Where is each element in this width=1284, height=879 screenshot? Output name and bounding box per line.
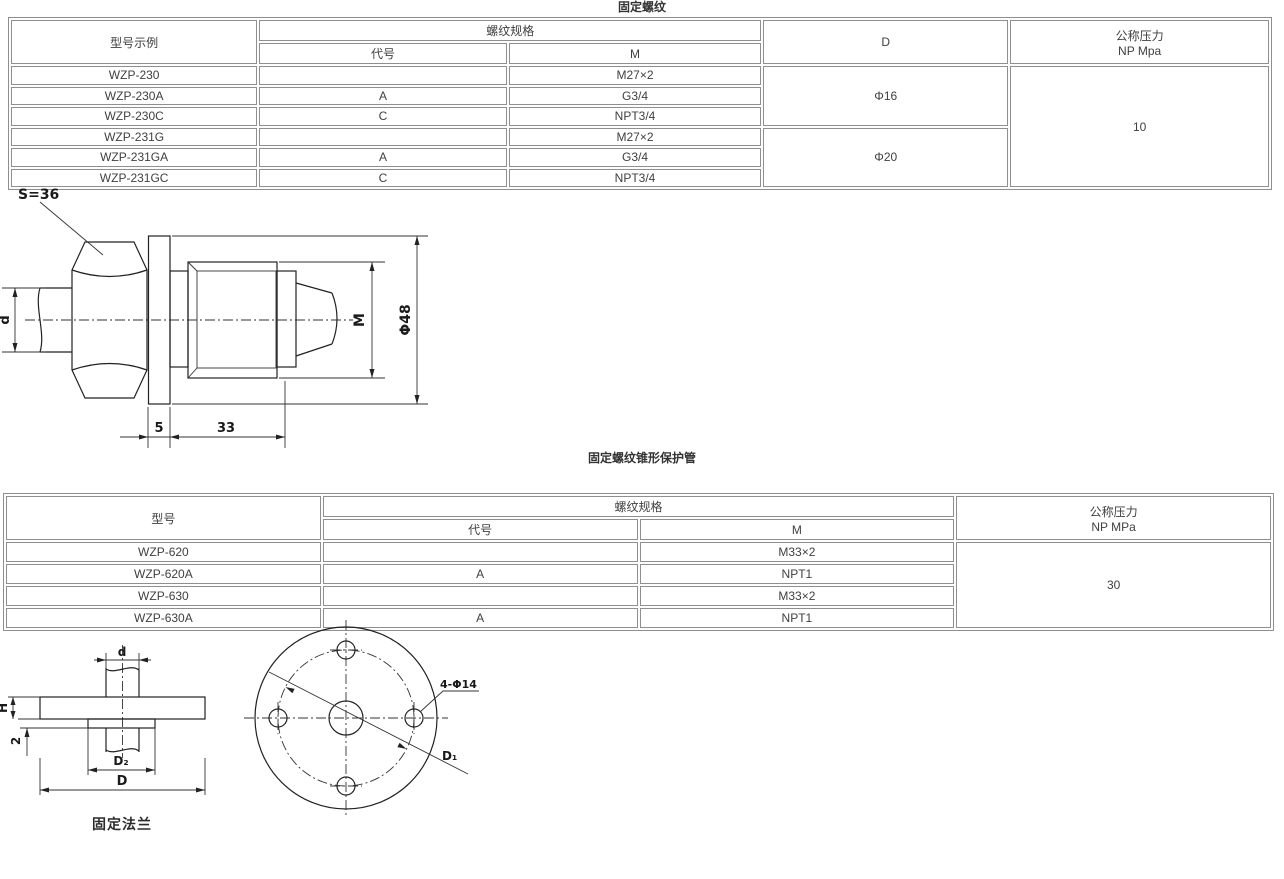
t2-header-model: 型号 (6, 496, 321, 540)
code-cell: C (259, 107, 507, 126)
metric-cell: M27×2 (509, 128, 762, 147)
t1-header-pressure: 公称压力 NP Mpa (1010, 20, 1269, 64)
bolt-holes-label: 4-Φ14 (440, 678, 477, 691)
section1-title: 固定螺纹 (0, 0, 1284, 15)
model-cell: WZP-630 (6, 586, 321, 606)
t2-header-pressure-line2: NP MPa (959, 520, 1268, 534)
code-cell (323, 586, 638, 606)
pressure-cell: 10 (1010, 66, 1269, 187)
code-cell (323, 542, 638, 562)
t2-header-thread-spec: 螺纹规格 (323, 496, 955, 517)
catalog-page: 固定螺纹 型号示例 螺纹规格 D 公称压力 NP Mpa 代号 M (0, 0, 1284, 879)
flange-height-dimension: H (0, 697, 40, 719)
metric-cell: M33×2 (640, 586, 955, 606)
t1-header-metric: M (509, 43, 762, 64)
thread-length-label: 33 (217, 421, 235, 436)
metric-cell: M33×2 (640, 542, 955, 562)
metric-cell: G3/4 (509, 87, 762, 106)
section2-title: 固定螺纹锥形保护管 (0, 449, 1284, 466)
thread-label: M (352, 313, 368, 327)
pressure-cell: 30 (956, 542, 1271, 628)
boss-dia-dimension: D₂ (88, 728, 155, 775)
code-cell: A (323, 564, 638, 584)
table-row: WZP-620 M33×2 30 (6, 542, 1271, 562)
metric-cell: NPT3/4 (509, 169, 762, 188)
tube-dia-label: d (118, 645, 127, 659)
metric-cell: NPT1 (640, 608, 955, 628)
neck-step (170, 271, 188, 367)
metric-cell: G3/4 (509, 148, 762, 167)
threaded-fitting-drawing: S=36 d M Φ48 (0, 185, 450, 455)
boss-height-label: 2 (9, 737, 23, 745)
t1-header-thread-spec: 螺纹规格 (259, 20, 761, 41)
model-cell: WZP-230A (11, 87, 257, 106)
diameter-cell: Φ16 (763, 66, 1008, 126)
flange-boss (88, 719, 155, 728)
fixed-thread-spec-table: 型号示例 螺纹规格 D 公称压力 NP Mpa 代号 M WZP-230 M27… (8, 17, 1272, 190)
t2-header-metric: M (640, 519, 955, 540)
code-cell (259, 128, 507, 147)
flange-dia-label: D (117, 774, 128, 789)
model-cell: WZP-231G (11, 128, 257, 147)
t1-header-pressure-line1: 公称压力 (1013, 27, 1266, 44)
boss-height-dimension: 2 (9, 728, 88, 756)
bolt-circle-dimension: D₁ (269, 672, 468, 774)
bolt-circle-label: D₁ (442, 749, 457, 763)
model-cell: WZP-620A (6, 564, 321, 584)
code-cell: A (259, 148, 507, 167)
flange-front-view: D₁ 4-Φ14 (244, 620, 479, 816)
table-row: WZP-230 M27×2 Φ16 10 (11, 66, 1269, 85)
metric-cell: M27×2 (509, 66, 762, 85)
bolt-holes-callout: 4-Φ14 (420, 678, 479, 712)
tapered-tube-spec-table: 型号 螺纹规格 公称压力 NP MPa 代号 M WZP-620 M33×2 3… (3, 493, 1274, 631)
model-cell: WZP-231GA (11, 148, 257, 167)
flange-side-view: d H 2 D₂ (0, 645, 205, 832)
cone-tip (277, 271, 337, 367)
center-cross (244, 620, 448, 816)
flange-caption: 固定法兰 (92, 816, 152, 832)
t2-header-pressure: 公称压力 NP MPa (956, 496, 1271, 540)
model-cell: WZP-620 (6, 542, 321, 562)
fixed-flange-drawing: d H 2 D₂ (0, 613, 500, 879)
t2-header-pressure-line1: 公称压力 (959, 503, 1268, 520)
t2-header-code: 代号 (323, 519, 638, 540)
flange-thickness-label: 5 (154, 421, 163, 436)
model-cell: WZP-230C (11, 107, 257, 126)
tube-dia-label: d (0, 315, 13, 324)
t1-header-code: 代号 (259, 43, 507, 64)
flange-height-label: H (0, 703, 10, 713)
code-cell (259, 66, 507, 85)
length-dimensions: 5 33 (120, 381, 285, 448)
metric-cell: NPT1 (640, 564, 955, 584)
code-cell: A (259, 87, 507, 106)
boss-dia-label: D₂ (113, 754, 128, 768)
outer-dia-label: Φ48 (398, 304, 414, 335)
wrench-size-label: S=36 (18, 187, 59, 203)
diameter-cell: Φ20 (763, 128, 1008, 188)
t1-header-diameter: D (763, 20, 1008, 64)
metric-cell: NPT3/4 (509, 107, 762, 126)
t1-header-pressure-line2: NP Mpa (1013, 44, 1266, 58)
leader-line (40, 202, 103, 255)
t1-header-model: 型号示例 (11, 20, 257, 64)
model-cell: WZP-230 (11, 66, 257, 85)
